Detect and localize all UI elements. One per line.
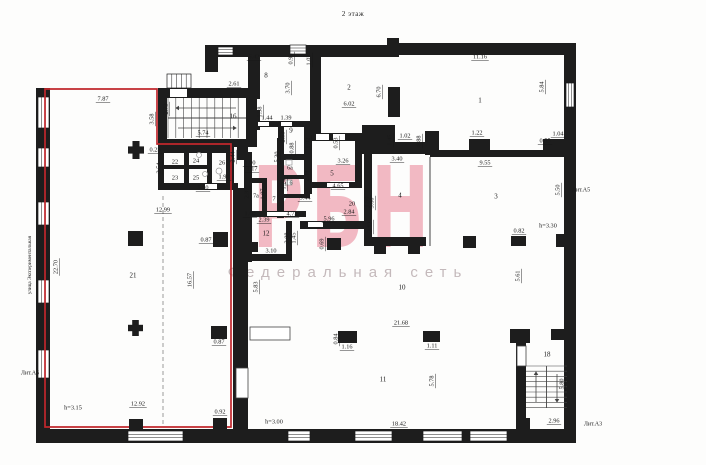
label-text: 3.58 (148, 113, 155, 124)
label-text: 1.17 (246, 165, 257, 172)
dimension-label: 2.61 (227, 80, 241, 87)
dimension-label: 2.08 (283, 231, 290, 245)
room-number-label: 10 (399, 284, 407, 292)
dimension-label: 2.53 (279, 130, 286, 144)
window (38, 280, 49, 303)
dimension-label: 5.96 (322, 215, 336, 222)
column-pier (511, 236, 526, 246)
dimension-label: 3.70 (284, 81, 291, 95)
column-pier (129, 419, 143, 430)
label-text: улица Экспериментальная (27, 235, 33, 294)
window-glass (290, 45, 306, 54)
dimension-label: 2.84 (342, 208, 356, 215)
label-text: 26 (219, 159, 226, 166)
window-glass (218, 47, 233, 55)
wall (184, 165, 212, 169)
wall (388, 87, 400, 117)
room-number-label: 2 (347, 84, 351, 92)
label-text: 0.92 (214, 408, 225, 415)
label-text: 20 (349, 200, 356, 207)
label-text: 6a (287, 165, 293, 171)
room-number-label: 7a (253, 193, 259, 199)
dimension-label: 0.88 (288, 141, 295, 155)
column-pier (469, 139, 490, 155)
dimension-label: 12.99 (154, 206, 172, 213)
column-pier (213, 232, 228, 247)
column-pier-part (128, 146, 144, 153)
wall (510, 329, 530, 343)
room-number-label: 25 (193, 174, 200, 181)
door-leaf (236, 368, 248, 398)
column-pier (213, 418, 227, 429)
wall (158, 147, 234, 153)
wall (36, 88, 50, 430)
floor-plan-drawing: 7.875.422.615.7416891.441.3926.0211.1611… (0, 0, 706, 465)
wall (408, 246, 420, 254)
wall (430, 150, 566, 157)
wall (364, 237, 426, 246)
window (566, 83, 574, 107)
label-text: 1.99 (218, 173, 229, 180)
label-text: 4.65 (332, 182, 343, 189)
window (128, 431, 183, 441)
label-text: 6.70 (375, 86, 382, 97)
dimension-label: 6.02 (342, 100, 356, 107)
dimension-label: 9.55 (478, 159, 492, 166)
window (38, 350, 49, 378)
dimension-label: 1.00 (243, 210, 257, 217)
label-text: h=3.15 (64, 404, 82, 411)
window-glass (38, 148, 49, 167)
label-text: h=3.00 (265, 418, 283, 425)
dimension-label: h=3.15 (64, 404, 82, 411)
label-text: 11 (380, 376, 387, 384)
plumbing-fixture (203, 172, 208, 177)
door-opening (170, 89, 187, 97)
room-number-label: 1 (478, 97, 482, 105)
room-number-label: 11 (380, 376, 387, 384)
room-number-label: 6 (290, 180, 293, 186)
windows-layer (38, 45, 574, 441)
label-text: 2.39 (258, 216, 269, 223)
label-text: 5.74 (197, 129, 209, 136)
dimension-label: 2.97 (243, 186, 250, 200)
dimension-label: 5.84 (538, 80, 545, 94)
floor-plan-page: 2 этаж РБН Федеральная сеть 7.875.422.61… (0, 0, 706, 465)
window (218, 47, 233, 55)
column-pier-part (128, 325, 143, 331)
dimension-label: 0.88 (415, 134, 422, 148)
label-text: 12 (263, 230, 271, 238)
room-number-label: 22 (172, 158, 179, 165)
label-text: 4 (398, 192, 402, 200)
window-glass (38, 202, 49, 225)
page-title: 2 этаж (0, 10, 706, 18)
dimension-label: h=3.00 (265, 418, 283, 425)
label-text: 2.73 (162, 103, 169, 114)
dimension-label: 2.54 (155, 161, 162, 175)
door-opening (308, 222, 323, 227)
dimension-label: 1.11 (425, 342, 439, 349)
label-text: 5.10 (197, 184, 208, 191)
dimension-label: 3.10 (264, 247, 278, 254)
label-text: 18 (544, 351, 552, 359)
label-text: 2.53 (279, 131, 286, 142)
window-glass (423, 431, 462, 441)
room-number-label: 8 (264, 72, 268, 80)
dimension-label: 21.68 (392, 319, 410, 326)
label-text: Лит.А3 (584, 421, 602, 427)
dimension-label: 11.16 (471, 53, 489, 60)
label-text: 23 (172, 174, 179, 181)
label-text: 0.87 (200, 236, 211, 243)
label-text: 1.02 (304, 137, 311, 148)
walls-layer (36, 38, 576, 443)
label-text: 1.45 (290, 232, 297, 243)
column-pier (128, 320, 143, 336)
label-text: 1.00 (244, 210, 255, 217)
label-text: Лит.А5 (572, 187, 590, 193)
dimension-label: 6.70 (375, 85, 382, 99)
label-text: 5.50 (554, 184, 561, 195)
wall (248, 242, 258, 252)
dimension-label: 1.38 (256, 105, 263, 119)
label-text: 2.84 (343, 208, 355, 215)
label-text: 0.88 (415, 135, 422, 146)
room-number-label: 6a (287, 165, 293, 171)
label-text: 7a (253, 193, 259, 199)
dimension-label: 18.42 (390, 420, 408, 427)
wall (310, 57, 321, 136)
label-text: 1.45 (386, 134, 393, 145)
room-number-label: 20 (349, 200, 356, 207)
wall (355, 139, 362, 186)
label-text: 0.87 (213, 338, 224, 345)
label-text: 21 (130, 272, 138, 280)
dimension-label: h=3.30 (539, 222, 557, 229)
dimension-label: 5.10 (196, 184, 210, 191)
door-opening (316, 134, 329, 140)
label-text: 5 (330, 170, 334, 178)
label-text: 9 (289, 127, 293, 135)
label-text: 1.04 (552, 130, 564, 137)
label-text: 3.70 (284, 82, 291, 93)
dimension-label: 3.58 (148, 112, 155, 126)
window-glass (38, 350, 49, 378)
label-text: 25 (193, 174, 200, 181)
dimension-label: 1.16 (340, 343, 354, 350)
dimension-label: 5.80 (558, 377, 565, 391)
label-text: 11.16 (473, 53, 487, 60)
dimension-label: 2.12 (366, 220, 373, 234)
label-text: 3 (494, 193, 498, 201)
dimension-label: 0.53 (332, 136, 339, 150)
dimension-label: 0.87 (199, 236, 213, 243)
label-text: 22.70 (52, 260, 59, 274)
window (38, 202, 49, 225)
label-text: 2 (347, 84, 351, 92)
label-text: 1.02 (305, 54, 312, 65)
dimension-label: 0.93 (287, 52, 294, 66)
dimension-label: 7.87 (96, 95, 110, 102)
wall (551, 329, 573, 340)
dimension-label: 0.84 (332, 332, 339, 346)
dimension-label: 2.38 (303, 169, 310, 183)
label-text: 3.10 (265, 247, 276, 254)
label-text: Лит.А6 (21, 370, 39, 376)
label-text: 5.61 (514, 270, 521, 281)
label-text: h=3.30 (539, 222, 557, 229)
label-text: 7 (272, 195, 276, 202)
label-text: 3.26 (337, 157, 348, 164)
wall (205, 47, 218, 72)
label-text: 2.08 (283, 232, 290, 243)
room-number-label: 12 (263, 230, 271, 238)
dimension-label: 3.44 (298, 194, 312, 201)
dimension-label: 2.44 (229, 150, 236, 164)
label-text: 1.22 (471, 129, 482, 136)
dimension-label: 5.78 (428, 374, 435, 388)
window-glass (167, 74, 191, 88)
window-glass (38, 280, 49, 303)
window-glass (470, 431, 507, 441)
label-text: 2.12 (366, 221, 373, 232)
label-text: 12.92 (131, 400, 145, 407)
room-number-label: 7 (272, 195, 276, 202)
label-text: 1.02 (399, 132, 410, 139)
label-text: 2.96 (548, 417, 559, 424)
dimension-label: 5.60 (368, 196, 375, 210)
label-text: 2.38 (303, 170, 310, 181)
dimension-label: 0.82 (512, 227, 526, 234)
dimension-label: 1.04 (551, 130, 565, 137)
room-number-label: 5 (330, 170, 334, 178)
wall (248, 57, 260, 99)
window-glass (288, 431, 310, 441)
label-text: 0.53 (332, 137, 339, 148)
wall (158, 95, 167, 145)
window (470, 431, 507, 441)
dimension-label: 0.87 (212, 338, 226, 345)
window-glass (38, 97, 49, 128)
window-glass (566, 83, 574, 107)
dimension-label: Лит.А5 (572, 187, 590, 193)
dimension-label: Лит.А6 (21, 370, 39, 376)
wall (556, 234, 565, 247)
room-number-label: 26 (219, 159, 226, 166)
dimension-label: 3.26 (336, 157, 350, 164)
label-text: 9.55 (479, 159, 490, 166)
label-text: 8 (264, 72, 268, 80)
label-text: 24 (193, 157, 200, 164)
dimension-label: 4.65 (331, 182, 345, 189)
window (355, 431, 392, 441)
label-text: 2.44 (229, 151, 236, 163)
label-text: 2.97 (243, 187, 250, 198)
label-text: 2.61 (228, 80, 239, 87)
label-text: 0.25 (149, 146, 160, 153)
column-pier (338, 331, 357, 343)
dimension-label: 5.30 (273, 150, 280, 164)
dimension-label: 1.24 (280, 177, 287, 191)
label-text: 0.55 (539, 137, 550, 144)
dimension-label: улица Экспериментальная (27, 235, 33, 294)
dimension-label: 16.57 (186, 271, 193, 289)
label-text: 0.82 (513, 227, 524, 234)
door-opening (258, 122, 269, 126)
wall (246, 254, 290, 261)
window (423, 431, 462, 441)
dimension-label: 22.70 (52, 258, 59, 276)
label-text: 10 (399, 284, 407, 292)
label-text: 12.99 (156, 206, 170, 213)
window-glass (128, 431, 183, 441)
dimension-label: 1.99 (217, 173, 231, 180)
label-text: 3.44 (299, 194, 311, 201)
dimension-label: 0.55 (538, 137, 552, 144)
room-number-label: 16 (230, 113, 238, 121)
label-text: 18.42 (392, 420, 406, 427)
label-text: 5.78 (428, 375, 435, 386)
column-pier (327, 238, 341, 250)
dimension-label: Лит.А3 (584, 421, 602, 427)
room-number-label: 21 (130, 272, 138, 280)
label-text: 1.16 (341, 343, 352, 350)
window (290, 45, 306, 54)
label-text: 1.07 (259, 188, 266, 199)
label-text: 0.69 (318, 238, 325, 249)
label-text: 2.54 (155, 162, 162, 174)
label-text: 5.60 (368, 197, 375, 208)
column-pier (128, 231, 143, 246)
label-text: 6.02 (343, 100, 354, 107)
door-leaf (517, 346, 526, 366)
dimension-label: 2.96 (547, 417, 561, 424)
label-text: 5.83 (252, 281, 259, 292)
label-text: 1.38 (256, 106, 263, 117)
column-pier (211, 326, 227, 339)
label-text: 21.68 (394, 319, 408, 326)
label-text: 6 (290, 180, 293, 186)
wall (374, 246, 386, 254)
dimension-label: 2.39 (257, 216, 271, 223)
door-leaf (250, 327, 290, 340)
label-text: 0.93 (287, 53, 294, 64)
column-pier (423, 331, 440, 342)
dimension-label: 5.50 (554, 183, 561, 197)
column-pier (463, 236, 476, 248)
dimension-label: 1.07 (259, 187, 266, 201)
label-text: 0.84 (332, 333, 339, 345)
room-number-label: 4 (398, 192, 402, 200)
window (38, 148, 49, 167)
dimension-label: 1.45 (290, 231, 297, 245)
room-number-label: 9 (289, 127, 293, 135)
window (288, 431, 310, 441)
plumbing-fixture (286, 160, 292, 165)
room-number-label: 24 (193, 157, 200, 164)
label-text: 7.87 (97, 95, 108, 102)
dimension-label: 1.17 (245, 165, 259, 172)
column-pier (128, 141, 144, 159)
dimension-label: 1.39 (279, 114, 293, 121)
label-text: 4.73 (286, 210, 297, 217)
dimension-label: 0.69 (318, 237, 325, 251)
label-text: 1.11 (427, 342, 438, 349)
room-number-label: 3 (494, 193, 498, 201)
label-text: 16.57 (186, 273, 193, 287)
dimension-label: 5.42 (247, 53, 261, 60)
room-number-label: 23 (172, 174, 179, 181)
label-text: 22 (172, 158, 179, 165)
dimension-label: 5.74 (196, 129, 210, 136)
label-text: 3.40 (391, 155, 402, 162)
dimension-label: 1.02 (305, 53, 312, 67)
dimension-label: 2.73 (162, 102, 169, 116)
window-glass (355, 431, 392, 441)
label-text: 16 (230, 113, 238, 121)
label-text: 0.88 (288, 142, 295, 153)
dimension-label: 1.02 (398, 132, 412, 139)
label-text: 1.39 (280, 114, 291, 121)
label-text: 5.42 (248, 53, 259, 60)
label-text: 5.84 (538, 81, 545, 93)
dimension-label: 3.40 (390, 155, 404, 162)
dimension-label: 0.92 (213, 408, 227, 415)
dimension-label: 1.45 (386, 133, 393, 147)
label-text: 5.30 (273, 151, 280, 162)
wall (516, 418, 530, 430)
label-text: 5.80 (558, 378, 565, 389)
dimension-label: 0.25 (148, 146, 162, 153)
dimension-label: 1.02 (304, 136, 311, 150)
window (38, 97, 49, 128)
room-number-label: 18 (544, 351, 552, 359)
dimension-label: 12.92 (129, 400, 147, 407)
label-text: 1 (478, 97, 482, 105)
label-text: 1.24 (280, 178, 287, 190)
window (167, 74, 191, 88)
door-opening (281, 122, 292, 126)
dimension-label: 5.83 (252, 280, 259, 294)
dimension-label: 4.73 (285, 210, 299, 217)
dimension-label: 1.22 (470, 129, 484, 136)
dimension-label: 5.61 (514, 269, 521, 283)
label-text: 5.96 (323, 215, 334, 222)
